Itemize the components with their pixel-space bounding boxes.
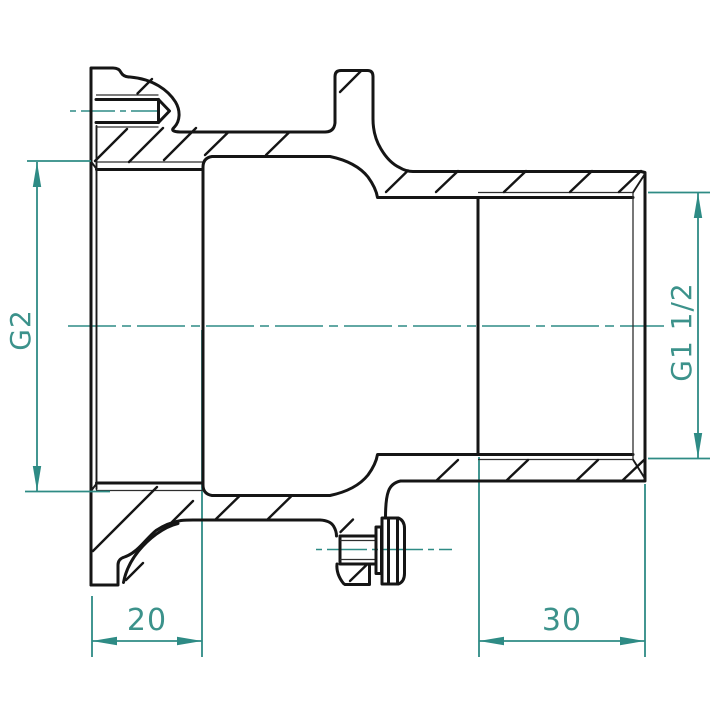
drawing-background: [0, 0, 718, 718]
dimension-label-g2: G2: [4, 309, 37, 351]
technical-drawing: G2 G1 1/2 20 30: [0, 0, 718, 718]
dimension-label-20: 20: [127, 603, 167, 638]
dimension-label-g1-half: G1 1/2: [665, 282, 698, 381]
drawing-canvas: G2 G1 1/2 20 30: [0, 0, 718, 718]
dimension-label-30: 30: [542, 603, 582, 638]
